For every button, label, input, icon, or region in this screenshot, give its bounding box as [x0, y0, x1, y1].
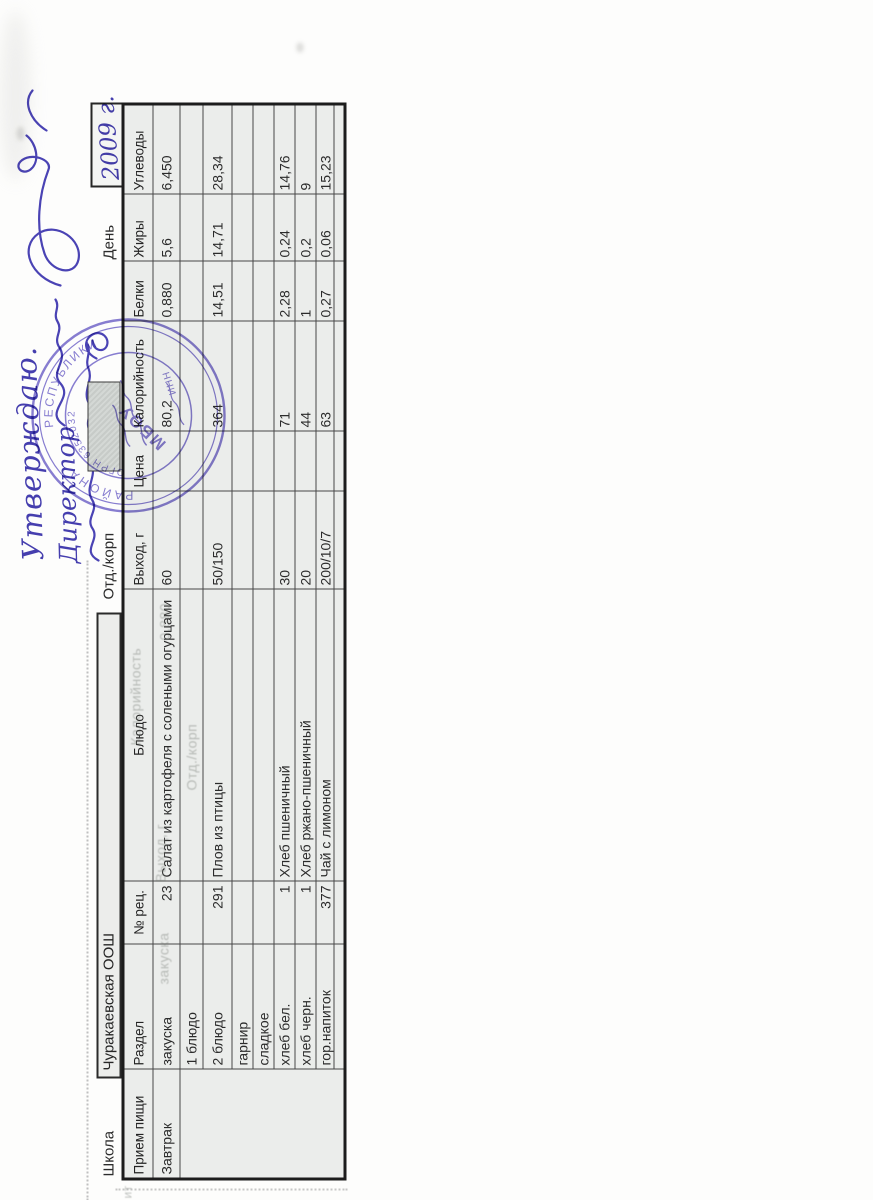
cell-calories: 44 [295, 321, 316, 431]
cell-meal: Завтрак [153, 1069, 180, 1179]
cell-fat: 14,71 [203, 194, 232, 261]
cell-recipe [334, 881, 345, 944]
cell-output: 30 [274, 491, 295, 589]
table-row: 1 блюдо [180, 104, 203, 1179]
cell-carbs: 6,450 [153, 104, 180, 194]
scan-speck [296, 42, 303, 52]
cell-carbs: 28,34 [203, 104, 232, 194]
cell-recipe [253, 881, 274, 944]
ghost-text: Отд./корп [183, 723, 199, 790]
cell-price [253, 431, 274, 491]
cell-protein [253, 261, 274, 321]
cell-recipe: 1 [295, 881, 316, 944]
col-header-carbs: Углеводы [123, 104, 153, 194]
cell-carbs: 14,76 [274, 104, 295, 194]
cell-recipe: 1 [274, 881, 295, 944]
cell-price [316, 431, 334, 491]
cell-section: гор.напиток [316, 944, 334, 1069]
ghost-text: закуска [155, 932, 171, 984]
cell-fat: 0,06 [316, 194, 334, 261]
col-header-fat: Жиры [123, 194, 153, 261]
cell-price [295, 431, 316, 491]
school-name-cell: Чуракаевская ООШ [96, 612, 121, 1078]
cell-output: 20 [295, 491, 316, 589]
cell-protein: 0,27 [316, 261, 334, 321]
scanned-page: Утверждаю. Директор Школа Чуракаевская О… [0, 0, 873, 1200]
cell-section: гарнир [232, 944, 253, 1069]
cell-calories: 63 [316, 321, 334, 431]
ghost-text: Выход, г [152, 823, 168, 882]
cell-section: хлеб черн. [295, 944, 316, 1069]
table-row: Завтрак закуска 23 Салат из картофеля с … [153, 104, 180, 1179]
cell-protein [334, 261, 345, 321]
cell-section: 1 блюдо [180, 944, 203, 1069]
cell-section: сладкое [253, 944, 274, 1069]
col-header-section: Раздел [123, 944, 153, 1069]
day-handwritten-date: 2009 г. [89, 103, 125, 186]
cell-meal-span [180, 1069, 345, 1179]
cell-fat [232, 194, 253, 261]
cell-price [334, 431, 345, 491]
page-edge-dotted-line-top [86, 560, 88, 1200]
table-row: гарнир [232, 104, 253, 1179]
table-row: сладкое [253, 104, 274, 1179]
cell-output [334, 491, 345, 589]
cell-protein: 14,51 [203, 261, 232, 321]
menu-table: Прием пищи Раздел № рец. Блюдо Выход, г … [121, 102, 346, 1180]
cell-carbs [253, 104, 274, 194]
cell-section: хлеб бел. [274, 944, 295, 1069]
ghost-text: ит [120, 1185, 134, 1198]
cell-fat: 0,24 [274, 194, 295, 261]
cell-calories [334, 321, 345, 431]
day-label: День [100, 224, 117, 259]
ghost-text: Калорийность [127, 647, 143, 745]
cell-section [334, 944, 345, 1069]
ghost-text: 0,880 [156, 602, 172, 640]
cell-recipe: 291 [203, 881, 232, 944]
cell-protein [232, 261, 253, 321]
table-row: гор.напиток 377 Чай с лимоном 200/10/7 6… [316, 104, 334, 1179]
cell-protein: 2,28 [274, 261, 295, 321]
cell-carbs [334, 104, 345, 194]
col-header-recipe: № рец. [123, 881, 153, 944]
cell-dish: Плов из птицы [203, 589, 232, 881]
table-row: хлеб бел. 1 Хлеб пшеничный 30 71 2,28 0,… [274, 104, 295, 1179]
cell-carbs: 9 [295, 104, 316, 194]
cell-recipe [180, 881, 203, 944]
cell-recipe: 377 [316, 881, 334, 944]
cell-dish: Хлеб пшеничный [274, 589, 295, 881]
cell-fat [334, 194, 345, 261]
cell-dish: Чай с лимоном [316, 589, 334, 881]
cell-carbs [180, 104, 203, 194]
document-rotated-content: Утверждаю. Директор Школа Чуракаевская О… [0, 0, 873, 1200]
table-row: хлеб черн. 1 Хлеб ржано-пшеничный 20 44 … [295, 104, 316, 1179]
cell-recipe [232, 881, 253, 944]
cell-dish: Хлеб ржано-пшеничный [295, 589, 316, 881]
cell-fat: 0,2 [295, 194, 316, 261]
cell-price [274, 431, 295, 491]
cell-protein: 1 [295, 261, 316, 321]
cell-calories: 71 [274, 321, 295, 431]
cell-dish [334, 589, 345, 881]
school-label: Школа [100, 1130, 117, 1176]
cell-output [180, 491, 203, 589]
table-row-empty [334, 104, 345, 1179]
col-header-meal: Прием пищи [123, 1069, 153, 1179]
cell-calories [232, 321, 253, 431]
cell-fat: 5,6 [153, 194, 180, 261]
cell-carbs: 15,23 [316, 104, 334, 194]
cell-output [253, 491, 274, 589]
cell-carbs [232, 104, 253, 194]
cell-calories [253, 321, 274, 431]
cell-output [232, 491, 253, 589]
cell-output: 50/150 [203, 491, 232, 589]
cell-section: 2 блюдо [203, 944, 232, 1069]
department-label: Отд./корп [100, 532, 117, 599]
cell-dish [253, 589, 274, 881]
cell-fat [253, 194, 274, 261]
cell-dish [232, 589, 253, 881]
cell-output: 200/10/7 [316, 491, 334, 589]
cell-fat [180, 194, 203, 261]
table-row: 2 блюдо 291 Плов из птицы 50/150 364 14,… [203, 104, 232, 1179]
page-edge-dotted-line-left [115, 1188, 347, 1190]
